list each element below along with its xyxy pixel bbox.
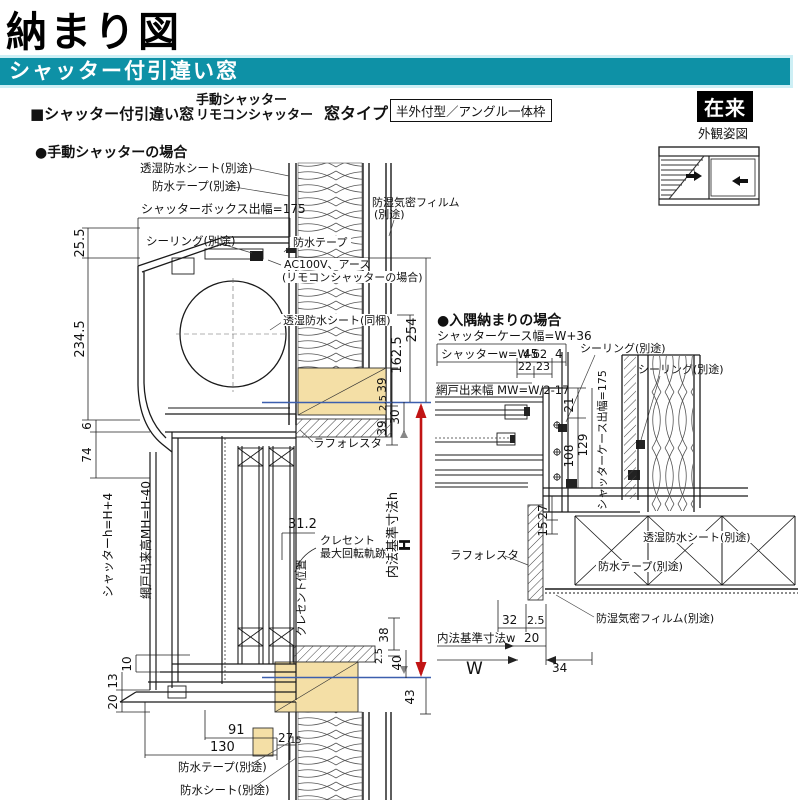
shutter-type-list: 手動シャッター リモコンシャッター: [196, 93, 313, 123]
dim-shutter-h: シャッターh=H+4: [101, 493, 115, 597]
callout-ac2: (リモコンシャッターの場合): [282, 270, 423, 284]
dim-20: 20: [106, 694, 120, 709]
callout-sealing1: シーリング(別途): [580, 341, 666, 355]
drawing-page: 納まり図 シャッター付引違い窓 ■シャッター付引違い窓 手動シャッター リモコン…: [0, 0, 800, 800]
sash-seal-2: [510, 435, 515, 443]
sash-seal-1: [524, 407, 530, 416]
inner-height-dimension: [416, 403, 427, 677]
corner-insulation: [649, 356, 693, 511]
corner-laforesta-hatch: [528, 505, 543, 600]
dim-6: 6: [80, 422, 94, 430]
dim-2-5a: 2.5: [378, 395, 389, 411]
shutter-box: [138, 237, 290, 452]
dim-32: 32: [502, 613, 517, 627]
dim-31-2: 31.2: [288, 517, 317, 532]
corner-wall-bottom: [545, 516, 798, 593]
corner-drawing: ●入隅納まりの場合 シャッターケース幅=W+36 シャッターw=W-62 45 …: [435, 312, 798, 679]
manual-heading: ●手動シャッターの場合: [35, 144, 188, 161]
callout-film: 防湿気密フィルム: [372, 195, 460, 209]
insulation-lower: [298, 712, 362, 800]
dim-H: H: [396, 539, 414, 552]
dim-254: 254: [405, 318, 420, 343]
dim-234-5: 234.5: [73, 320, 88, 357]
dim-25-5: 25.5: [73, 229, 88, 258]
cladding-hatch: [624, 356, 636, 499]
construction-badge: 在来: [697, 91, 753, 122]
dim-21: 21: [562, 397, 576, 412]
sill-trim-hatch: [293, 646, 375, 662]
callout-film-corner: 防湿気密フィルム(別途): [596, 611, 714, 625]
callout-tape-corner: 防水テープ(別途): [598, 559, 683, 573]
dim-screen-h: 網戸出来高MH=H-40: [138, 481, 153, 599]
dim-15: 15: [290, 736, 301, 746]
dim-2-5b: 2.5: [374, 648, 385, 664]
callout-film2: (別途): [374, 207, 405, 221]
window-type-value: 半外付型／アングル一体枠: [390, 99, 552, 122]
dim-10: 10: [120, 656, 134, 671]
callout-sheet-mid: 透湿防水シート(同梱): [283, 313, 391, 327]
dim-inner-h: 内法基準寸法h: [385, 492, 401, 578]
section-drawings: ●手動シャッターの場合: [0, 138, 800, 800]
callout-sheet-top: 透湿防水シート(別途): [140, 161, 252, 175]
manual-dimensions: 25.5 234.5 6 74 シャッターh=H+4 網戸出来高MH=H-40 …: [73, 229, 420, 755]
dim-129: 129: [576, 434, 590, 457]
dim-91: 91: [228, 723, 245, 738]
dim-43: 43: [403, 689, 417, 704]
corner-heading: ●入隅納まりの場合: [437, 312, 562, 329]
product-name: ■シャッター付引違い窓: [30, 103, 194, 124]
dim-W: W: [466, 659, 483, 679]
dim-13: 13: [106, 673, 120, 688]
dim-case-d: シャッターケース出幅=175: [595, 370, 609, 510]
dim-40: 40: [390, 655, 404, 670]
sealing-block: [250, 251, 263, 261]
callout-sheet-bottom: 防水シート(別途): [180, 783, 269, 797]
shutter-type-remote: リモコンシャッター: [196, 108, 313, 123]
callout-box-width: シャッターボックス出幅=175: [141, 201, 306, 216]
callout-crescent2: 最大回転軌跡: [320, 546, 386, 560]
dim-39a: 39: [375, 377, 389, 392]
shutter-type-manual: 手動シャッター: [196, 93, 313, 108]
manual-shutter-drawing: ●手動シャッターの場合: [35, 144, 460, 800]
callout-laforesta: ラフォレスタ: [313, 436, 382, 450]
shutter-roll-axis: [176, 278, 290, 392]
dim-2-5c: 2.5: [527, 614, 545, 627]
dim-inner-w-label: 内法基準寸法w: [437, 631, 515, 645]
dim-30: 30: [388, 409, 402, 424]
dim-39b: 39: [375, 420, 389, 435]
callout-crescent1: クレセント: [320, 534, 375, 547]
head-wood-block: [298, 368, 386, 415]
dim-162-5: 162.5: [390, 336, 405, 373]
case-seal-1: [566, 479, 577, 488]
dim-20c: 20: [524, 631, 539, 645]
dim-45: 45: [523, 347, 538, 361]
window-type-label: 窓タイプ: [324, 100, 388, 124]
dim-108: 108: [562, 445, 576, 468]
dim-38: 38: [377, 627, 391, 642]
w-arrow: [508, 656, 518, 664]
dim-130: 130: [210, 740, 235, 755]
callout-sheet-corner: 透湿防水シート(別途): [643, 530, 751, 544]
section-banner: シャッター付引違い窓: [0, 55, 793, 88]
sash-panes: [238, 446, 294, 664]
dim-case-w: シャッターケース幅=W+36: [437, 328, 592, 343]
callout-laforesta-corner: ラフォレスタ: [450, 548, 519, 562]
dim-74: 74: [80, 447, 94, 462]
callout-tape-bottom: 防水テープ(別途): [178, 760, 267, 774]
page-title: 納まり図: [6, 0, 182, 58]
callout-sealing: シーリング(別途): [146, 234, 235, 248]
callout-ac: AC100V、アース: [284, 258, 370, 271]
callout-tape-top: 防水テープ(別途): [152, 179, 241, 193]
callout-tape-wall: 防水テープ: [293, 235, 347, 249]
dim-crescent-pos: クレセント位置: [294, 560, 308, 637]
dim-34: 34: [552, 661, 567, 675]
